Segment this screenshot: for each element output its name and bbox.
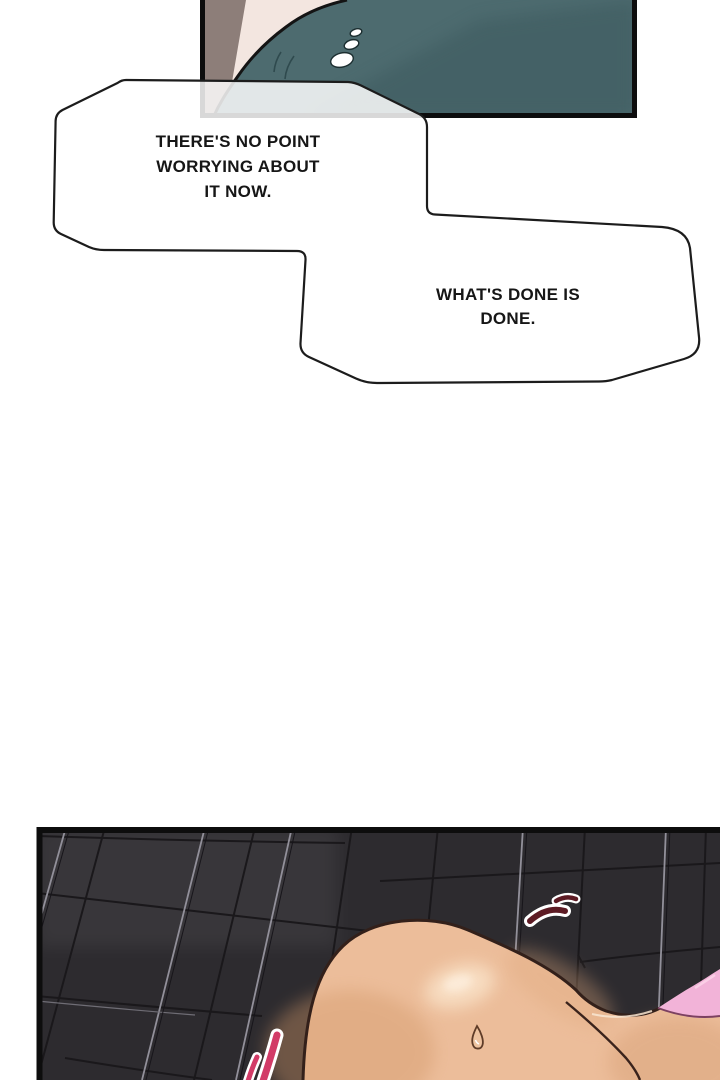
bubble-line: WORRYING ABOUT <box>118 154 358 179</box>
speech-bubble-2-text: WHAT'S DONE IS DONE. <box>388 283 628 331</box>
bubble-line: IT NOW. <box>118 179 358 204</box>
speech-bubble-1-text: THERE'S NO POINT WORRYING ABOUT IT NOW. <box>118 129 358 204</box>
comic-page: THERE'S NO POINT WORRYING ABOUT IT NOW. … <box>0 0 720 1080</box>
bubble-line: DONE. <box>388 307 628 331</box>
comic-artwork <box>0 0 720 1080</box>
bubble-line: WHAT'S DONE IS <box>388 283 628 307</box>
bubble-line: THERE'S NO POINT <box>118 129 358 154</box>
bottom-panel-art <box>0 827 720 1080</box>
bottom-panel <box>0 827 720 1080</box>
speech-bubble-outline <box>54 80 700 383</box>
